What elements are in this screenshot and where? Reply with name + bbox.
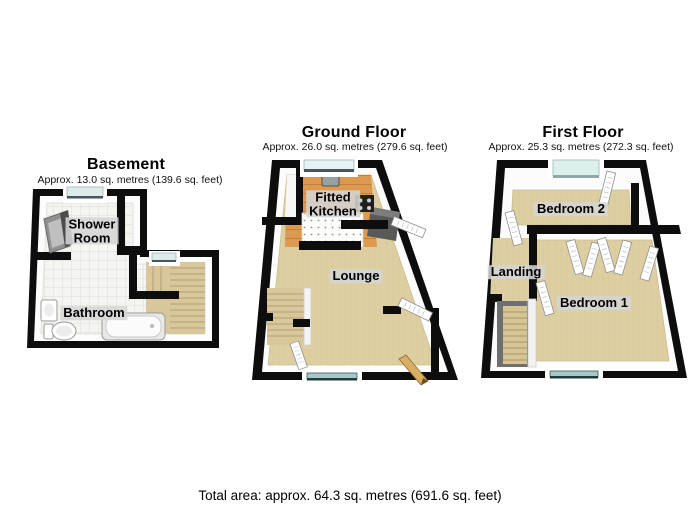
room-label-bedroom2: Bedroom 2 <box>534 202 608 216</box>
interior-wall <box>431 308 439 373</box>
floorplan-image <box>0 0 700 509</box>
first-top-window <box>548 159 604 181</box>
basement-stairs-window <box>149 251 180 266</box>
room-label-fitted-kitchen: Fitted Kitchen <box>306 190 360 217</box>
basement-window <box>63 185 107 203</box>
interior-wall <box>259 313 273 321</box>
room-label-landing: Landing <box>488 265 545 279</box>
room-label-bathroom: Bathroom <box>60 306 127 320</box>
interior-wall <box>631 183 639 228</box>
floor-title-ground: Ground Floor <box>302 124 407 142</box>
kitchen-window <box>300 159 358 177</box>
interior-wall <box>262 217 307 225</box>
basement-sink-icon <box>41 300 57 321</box>
floor-area-first: Approx. 25.3 sq. metres (272.3 sq. feet) <box>488 141 673 153</box>
first-bottom-window <box>545 368 603 381</box>
basement-plan <box>27 185 219 348</box>
interior-wall <box>299 241 361 250</box>
interior-wall <box>341 220 388 229</box>
interior-wall <box>529 225 537 301</box>
interior-wall <box>117 246 147 255</box>
first-stairs <box>497 299 536 367</box>
lounge-window <box>302 370 362 383</box>
interior-wall <box>527 225 681 234</box>
interior-wall <box>129 291 179 299</box>
interior-wall <box>383 306 401 314</box>
interior-wall <box>293 319 310 327</box>
room-label-bedroom1: Bedroom 1 <box>557 296 631 310</box>
total-area-text: Total area: approx. 64.3 sq. metres (691… <box>198 488 501 503</box>
floor-area-basement: Approx. 13.0 sq. metres (139.6 sq. feet) <box>37 174 222 186</box>
room-label-shower-room: Shower Room <box>66 217 119 244</box>
floor-area-ground: Approx. 26.0 sq. metres (279.6 sq. feet) <box>262 141 447 153</box>
floor-title-basement: Basement <box>87 156 165 174</box>
room-label-lounge: Lounge <box>330 269 383 283</box>
floorplan-page: Basement Approx. 13.0 sq. metres (139.6 … <box>0 0 700 509</box>
interior-wall <box>33 252 71 260</box>
ground-stairs <box>267 288 311 345</box>
toilet-icon <box>44 322 76 340</box>
floor-title-first: First Floor <box>542 124 623 142</box>
interior-wall <box>489 294 502 302</box>
